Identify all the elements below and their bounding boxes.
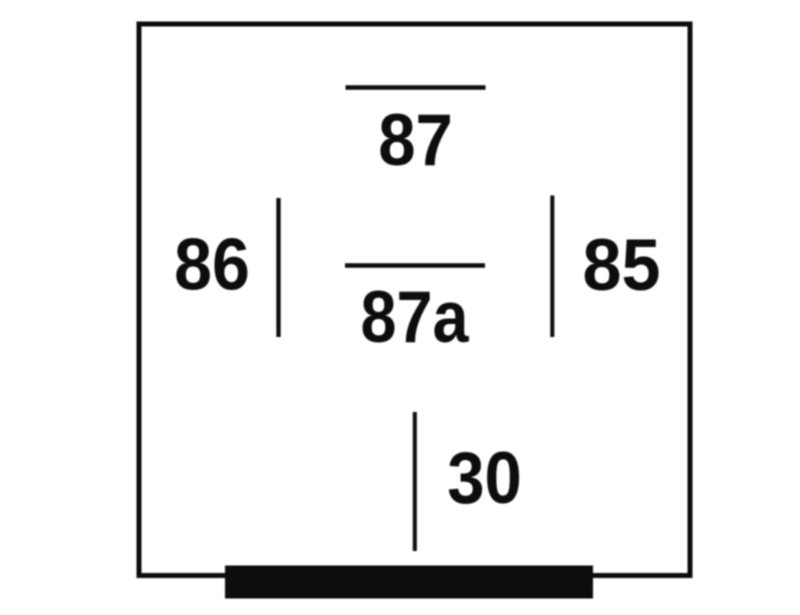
svg-text:85: 85 <box>583 223 661 306</box>
svg-text:86: 86 <box>174 223 250 306</box>
svg-text:87a: 87a <box>361 275 470 358</box>
svg-text:30: 30 <box>447 436 522 519</box>
svg-text:87: 87 <box>378 98 453 181</box>
